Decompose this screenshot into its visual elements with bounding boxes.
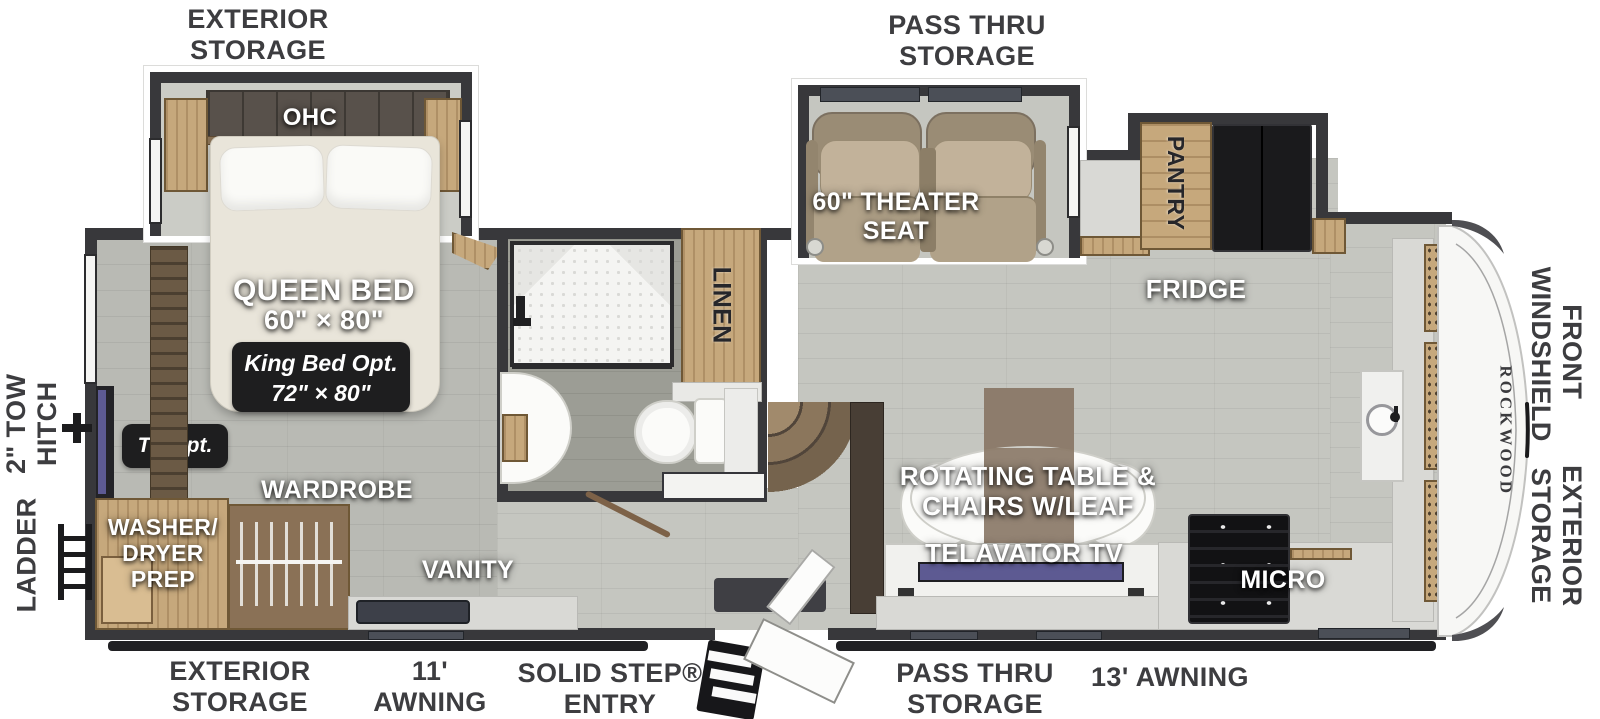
ladder-rung-3: [58, 568, 92, 573]
bedroom-rear-window: [84, 254, 97, 384]
bottom-window-living-3: [1318, 628, 1410, 639]
tow-hitch-bar-v: [73, 413, 81, 443]
bottom-window-living-2: [1036, 631, 1102, 640]
televator-tv-label: TELAVATOR TV: [904, 539, 1144, 569]
label-ladder: LADDER: [12, 500, 43, 612]
shower-threshold: [512, 363, 672, 369]
toilet-bowl: [634, 400, 698, 464]
toilet-tank: [694, 398, 728, 464]
counter-right-of-fridge: [1312, 218, 1346, 254]
theater-window-right: [1067, 126, 1080, 218]
wardrobe-rod: [236, 560, 342, 564]
shower: [510, 241, 674, 367]
awning-rail-front: [836, 641, 1436, 651]
theater-cupholder-right: [1036, 238, 1054, 256]
queen-bed-label: QUEEN BED: [214, 274, 434, 308]
stove-backsplash: [1290, 548, 1352, 560]
bump-wall-right: [1316, 113, 1328, 224]
label-front-exterior-storage: EXTERIOR STORAGE: [1525, 458, 1587, 614]
bathroom-sink-tray: [502, 414, 528, 462]
wardrobe-hangers: [240, 522, 338, 606]
front-cap: [1398, 208, 1538, 653]
theater-window-top-1: [820, 87, 920, 102]
label-tow-hitch: 2" TOW HITCH: [1, 368, 63, 480]
bottom-window-living-1: [910, 631, 978, 640]
table-leaf-runner-top: [984, 388, 1074, 454]
linen-label: LINEN: [707, 260, 736, 350]
toilet-ledge: [724, 388, 758, 474]
micro-label: MICRO: [1208, 566, 1358, 595]
theater-window-top-2: [928, 87, 1022, 102]
pantry-label: PANTRY: [1163, 133, 1189, 233]
washer-dryer-label: WASHER/ DRYER PREP: [93, 514, 233, 593]
pillow-right: [325, 144, 433, 212]
bedroom-tv-screen: [98, 390, 106, 494]
label-bottom-pass-thru: PASS THRU STORAGE: [880, 658, 1070, 719]
wardrobe-label: WARDROBE: [237, 476, 437, 505]
pillow-left: [219, 144, 325, 212]
king-bed-option-badge: King Bed Opt. 72" × 80": [232, 342, 410, 412]
shower-head-handle: [513, 318, 531, 326]
entry-cabinet: [850, 402, 884, 614]
label-top-exterior-storage: EXTERIOR STORAGE: [168, 4, 348, 66]
nightstand-left: [164, 98, 208, 192]
bathroom-half-wall: [662, 472, 766, 500]
bottom-window-bedroom: [368, 631, 464, 640]
label-top-pass-thru: PASS THRU STORAGE: [872, 10, 1062, 72]
ladder-rung-4: [58, 584, 92, 589]
queen-bed-size: 60" × 80": [214, 305, 434, 336]
vanity-sink: [356, 600, 470, 624]
ohc-label-bedroom: OHC: [250, 104, 370, 131]
label-bottom-exterior-storage: EXTERIOR STORAGE: [150, 656, 330, 718]
label-solid-step-entry: SOLID STEP® ENTRY: [515, 658, 705, 719]
fridge-door-seam: [1261, 126, 1263, 250]
bedroom-dresser: [150, 246, 188, 518]
ladder-rung-2: [58, 552, 92, 557]
brand-label: ROCKWOOD: [1496, 351, 1515, 511]
label-awning-11: 11' AWNING: [340, 656, 520, 718]
bedroom-slide-window-right: [459, 120, 472, 218]
awning-rail-rear: [108, 641, 648, 651]
bedroom-slide-window-left: [149, 138, 162, 224]
theater-seat-label: 60" THEATER SEAT: [796, 188, 996, 245]
top-wall-rear: [85, 228, 157, 240]
label-front-windshield: FRONT WINDSHIELD: [1525, 267, 1587, 437]
ladder-rung-1: [58, 536, 92, 541]
label-awning-13: 13' AWNING: [1080, 662, 1260, 693]
floorplan-diagram: OHC QUEEN BED 60" × 80" King Bed Opt. 72…: [0, 0, 1600, 719]
fridge-label: FRIDGE: [1096, 275, 1296, 305]
vanity-label: VANITY: [368, 556, 568, 585]
rotating-table-label: ROTATING TABLE & CHAIRS W/LEAF: [898, 462, 1158, 521]
